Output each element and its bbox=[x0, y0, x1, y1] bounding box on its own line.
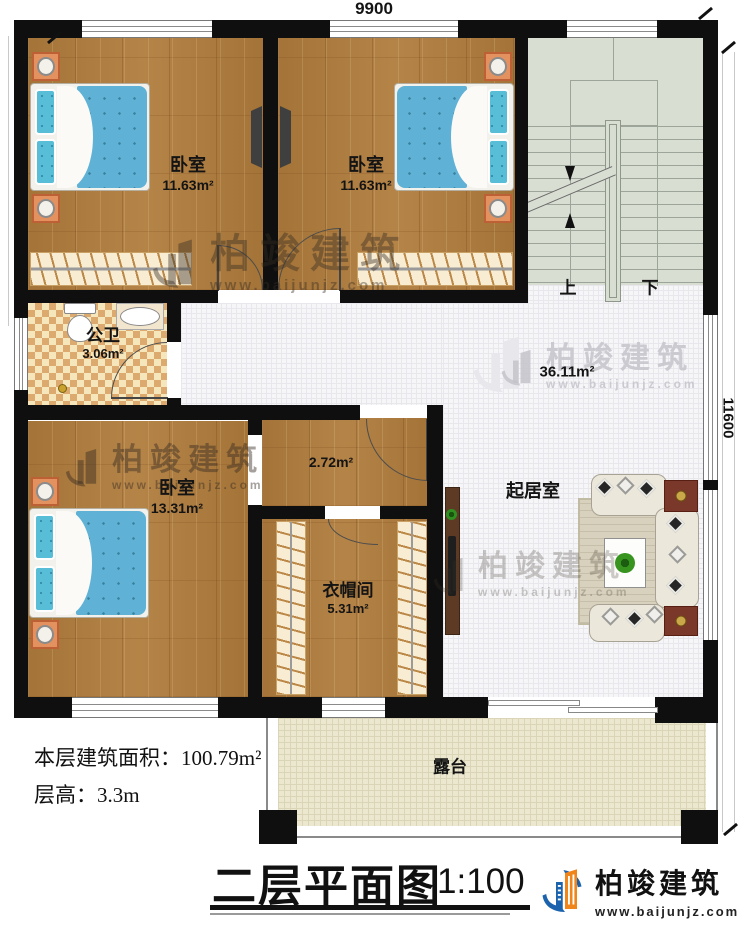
bed-bedroom-3 bbox=[29, 508, 149, 618]
nightstand bbox=[31, 477, 59, 506]
side-table bbox=[664, 606, 698, 636]
wall bbox=[458, 20, 567, 38]
brand-name: 柏竣建筑 bbox=[595, 862, 739, 902]
plant bbox=[446, 509, 457, 520]
wall bbox=[248, 405, 262, 435]
wall bbox=[703, 480, 718, 490]
nightstand bbox=[32, 52, 60, 81]
dimension-right: 11600 bbox=[720, 398, 737, 439]
pillow bbox=[34, 566, 55, 612]
wall bbox=[14, 697, 72, 718]
stair-handrail bbox=[605, 120, 621, 302]
door-leaf-bedroom-1 bbox=[217, 245, 219, 291]
room-name: 卧室 bbox=[340, 151, 391, 177]
terrace-pier bbox=[259, 810, 297, 844]
pillow bbox=[488, 89, 509, 135]
floor-area-note: 本层建筑面积：100.79m² bbox=[34, 742, 261, 772]
wardrobe bbox=[357, 252, 513, 286]
side-table bbox=[664, 480, 698, 512]
dimension-tick bbox=[723, 823, 738, 836]
floor-area-value: 100.79m² bbox=[181, 746, 261, 770]
room-label-cloakroom: 衣帽间 5.31m² bbox=[323, 576, 374, 616]
nightstand bbox=[484, 52, 512, 81]
terrace-parapet-bottom bbox=[266, 826, 718, 838]
window bbox=[322, 697, 385, 718]
sliding-door bbox=[488, 700, 580, 706]
stair-line bbox=[570, 126, 571, 286]
wall bbox=[218, 697, 322, 718]
pillow bbox=[34, 514, 55, 560]
room-name: 卧室 bbox=[151, 474, 203, 500]
brand-logo-icon bbox=[538, 864, 586, 918]
wardrobe bbox=[397, 521, 427, 695]
floor-area-label: 本层建筑面积： bbox=[34, 746, 181, 770]
room-label-bedroom-2: 卧室 11.63m² bbox=[340, 151, 391, 193]
title-underline-thick bbox=[210, 905, 530, 910]
door-panel bbox=[280, 106, 291, 168]
wall bbox=[655, 697, 718, 723]
door-leaf-bedroom-2 bbox=[339, 228, 341, 291]
room-label-bathroom: 公卫 3.06m² bbox=[82, 321, 123, 361]
dimension-top: 9900 bbox=[355, 0, 393, 19]
room-area: 11.63m² bbox=[162, 177, 213, 193]
room-name: 卧室 bbox=[162, 151, 213, 177]
sliding-door bbox=[568, 707, 658, 713]
wall bbox=[14, 20, 28, 318]
room-label-terrace: 露台 bbox=[433, 753, 467, 778]
room-name: 衣帽间 bbox=[323, 576, 374, 601]
room-area: 13.31m² bbox=[151, 500, 203, 516]
room-label-bedroom-1: 卧室 11.63m² bbox=[162, 151, 213, 193]
stair-line bbox=[657, 126, 658, 286]
floor-height-label: 层高： bbox=[34, 783, 97, 807]
wall bbox=[248, 505, 262, 697]
stair-arrow-up bbox=[565, 213, 575, 228]
nightstand bbox=[484, 194, 512, 223]
floor-plan-canvas: 9900 11600 bbox=[0, 0, 750, 932]
stair-arrow-down bbox=[565, 166, 575, 181]
pillow bbox=[35, 139, 56, 185]
dimension-tick bbox=[698, 7, 713, 20]
wall bbox=[703, 20, 718, 315]
extension-line bbox=[722, 52, 723, 832]
pillow bbox=[488, 139, 509, 185]
floor-drain bbox=[58, 384, 67, 393]
living-area-label: 36.11m² bbox=[539, 364, 594, 381]
ghost-brand-icon bbox=[468, 330, 530, 400]
window bbox=[703, 315, 718, 480]
brand-url: www.baijunjz.com bbox=[595, 904, 739, 919]
door-panel bbox=[251, 106, 262, 168]
room-area: 11.63m² bbox=[340, 177, 391, 193]
brand-logo: 柏竣建筑 www.baijunjz.com bbox=[538, 862, 739, 919]
window bbox=[82, 20, 212, 38]
drawing-scale: 1:100 bbox=[437, 862, 525, 902]
wall bbox=[380, 506, 427, 519]
tv bbox=[448, 536, 456, 596]
nightstand bbox=[31, 620, 59, 649]
terrace-floor bbox=[278, 718, 706, 826]
extension-line bbox=[8, 36, 9, 326]
wardrobe bbox=[30, 252, 192, 286]
wall bbox=[28, 290, 218, 303]
terrace-pier bbox=[681, 810, 718, 844]
floor-height-value: 3.3m bbox=[97, 783, 140, 807]
room-area: 5.31m² bbox=[323, 601, 374, 616]
bed-bedroom-2 bbox=[394, 83, 514, 191]
wall bbox=[340, 290, 515, 303]
nightstand bbox=[32, 194, 60, 223]
room-label-bedroom-3: 卧室 13.31m² bbox=[151, 474, 203, 516]
wall bbox=[427, 405, 443, 697]
window bbox=[72, 697, 218, 718]
wall bbox=[167, 295, 181, 342]
pillow bbox=[35, 89, 56, 135]
room-name: 公卫 bbox=[82, 321, 123, 346]
room-area: 3.06m² bbox=[82, 346, 123, 361]
title-underline-thin bbox=[210, 913, 510, 915]
window bbox=[14, 318, 28, 390]
bed-bedroom-1 bbox=[30, 83, 150, 191]
wardrobe bbox=[276, 521, 306, 695]
room-label-living: 起居室 bbox=[506, 477, 560, 503]
wall bbox=[14, 390, 28, 718]
corridor-area-label: 2.72m² bbox=[309, 454, 353, 470]
wall bbox=[515, 38, 528, 303]
wall bbox=[262, 506, 325, 519]
hallway-floor bbox=[181, 303, 443, 405]
door-leaf-bathroom bbox=[111, 397, 168, 399]
plant bbox=[615, 553, 635, 573]
stair-up-label: 上 bbox=[560, 274, 577, 299]
stair-line bbox=[613, 38, 614, 80]
floor-height-note: 层高：3.3m bbox=[34, 779, 140, 809]
wall bbox=[14, 405, 360, 420]
extension-line bbox=[734, 52, 735, 832]
stair-down-label: 下 bbox=[642, 274, 659, 299]
wall bbox=[385, 697, 488, 718]
window bbox=[567, 20, 657, 38]
window bbox=[703, 490, 718, 640]
wall bbox=[263, 38, 278, 290]
window bbox=[330, 20, 458, 38]
wall bbox=[212, 20, 330, 38]
